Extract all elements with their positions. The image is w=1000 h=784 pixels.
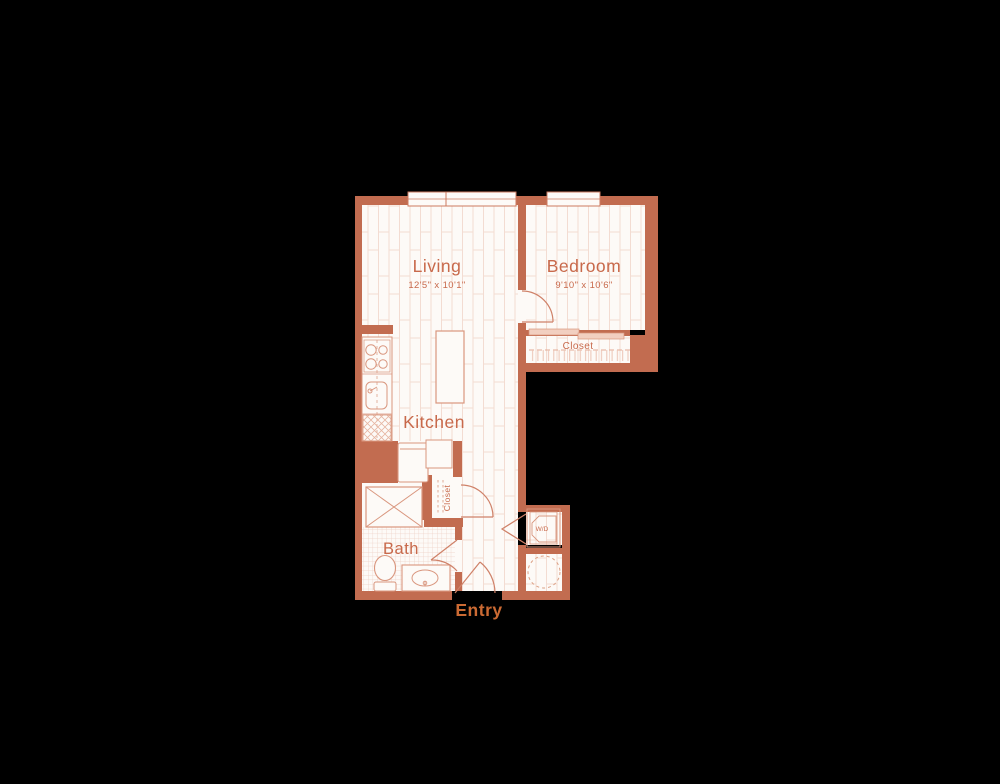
bedroom-closet-label: Closet: [563, 341, 594, 352]
washer-dryer-label: W/D: [536, 526, 549, 533]
toilet: [374, 556, 396, 592]
sliding-door-panel: [529, 329, 579, 335]
cabinet: [426, 440, 452, 468]
wall-bottom-left: [355, 591, 452, 600]
floor-plan-stage: Living 12'5" x 10'1" Bedroom 9'10" x 10'…: [0, 0, 1000, 784]
wall-mech-divider: [526, 548, 562, 554]
bedroom-dims: 9'10" x 10'6": [555, 280, 612, 291]
wall-mid-lower: [518, 323, 526, 505]
bath-label: Bath: [383, 540, 419, 558]
wall-laundry-right: [562, 505, 570, 600]
hall-planks: [462, 441, 518, 591]
bath-door-opening: [455, 540, 462, 572]
wall-hall-closet-bottom: [424, 518, 463, 527]
mech-planks: [526, 554, 562, 591]
bedroom-door-opening: [518, 290, 526, 323]
living-label: Living: [413, 256, 462, 276]
vanity-sink: [402, 565, 450, 591]
wall-bath-right-upper: [455, 527, 462, 540]
windows: [408, 192, 600, 206]
refrigerator: [398, 443, 428, 482]
bedroom-label: Bedroom: [547, 256, 622, 276]
wall-bottom-right: [502, 591, 570, 600]
entry-label: Entry: [455, 600, 502, 620]
hall-closet-label: Closet: [442, 485, 452, 512]
floor-plan: Living 12'5" x 10'1" Bedroom 9'10" x 10'…: [0, 0, 1000, 784]
wall-kitchen-stub: [360, 325, 393, 334]
kitchen-island: [436, 331, 464, 403]
wall-laundry-left: [518, 545, 526, 591]
wall-closet-bottom: [518, 363, 658, 372]
dishwasher: [363, 415, 391, 441]
sliding-door-panel: [578, 333, 624, 339]
living-dims: 12'5" x 10'1": [408, 280, 465, 291]
wall-kitchen-block: [355, 441, 398, 483]
bedroom-window: [547, 192, 600, 206]
living-window: [408, 192, 516, 206]
wall-left: [355, 196, 362, 600]
shower: [366, 487, 422, 527]
wall-mid-upper: [518, 196, 526, 290]
wall-cabinet-stub: [453, 441, 462, 477]
kitchen-label: Kitchen: [403, 412, 465, 432]
